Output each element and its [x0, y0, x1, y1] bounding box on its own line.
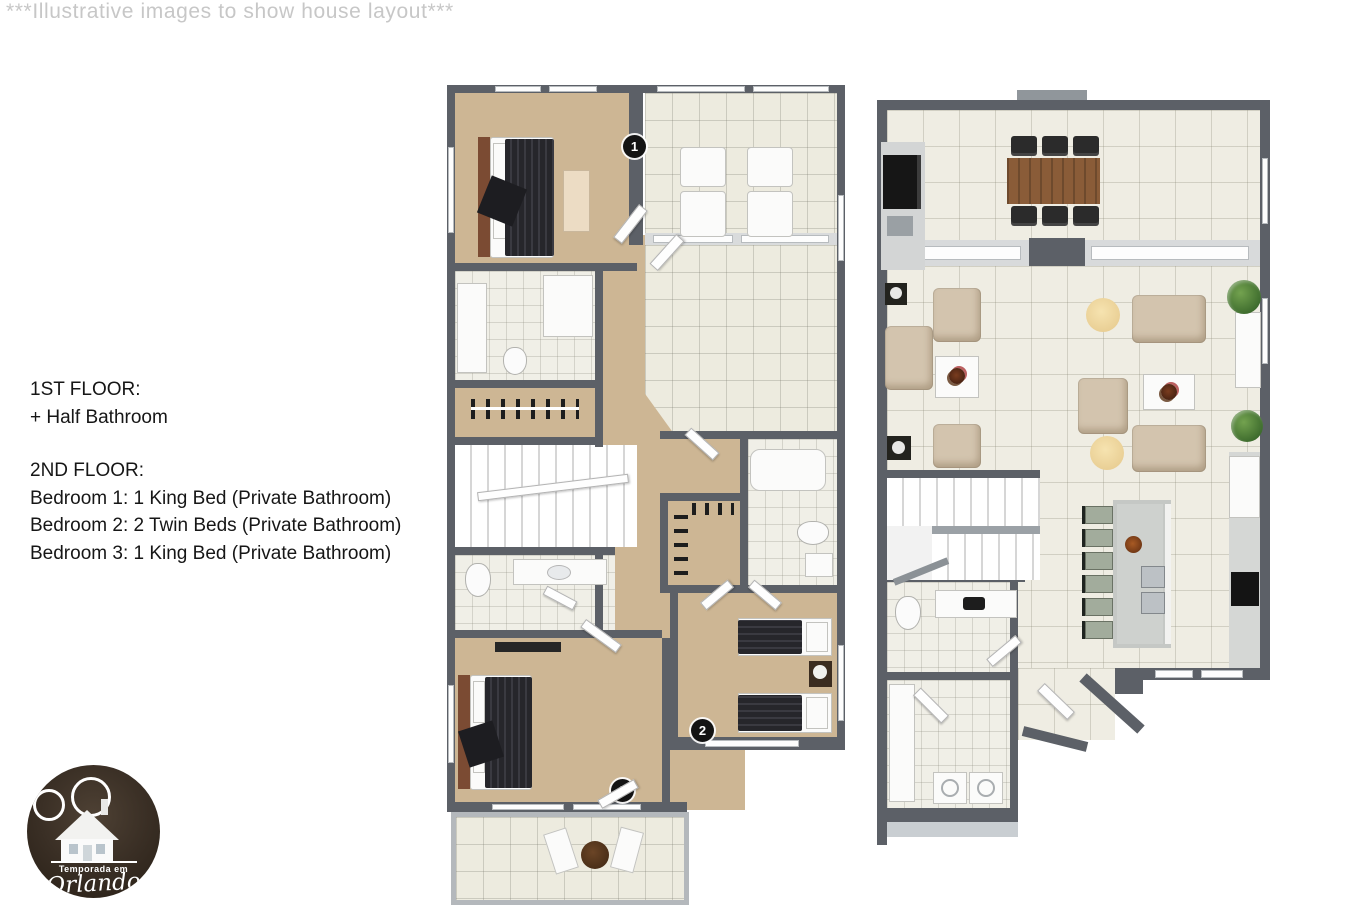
logo-rule: [51, 861, 137, 863]
bed3-pillow: [473, 681, 485, 723]
deck-lounger-back: [747, 147, 793, 187]
washer-door: [941, 779, 959, 797]
second-floor-plan: 1 3: [447, 85, 845, 910]
dining-chair: [1073, 206, 1099, 226]
wall: [887, 672, 1018, 680]
loveseat: [885, 326, 933, 390]
disclaimer-text: ***Illustrative images to show house lay…: [6, 0, 454, 24]
dining-chair: [1042, 206, 1068, 226]
bath2-sink: [547, 565, 571, 580]
twin-bed-1-duvet: [738, 620, 802, 654]
logo-house-roof: [55, 810, 119, 840]
floor2-item-bedroom2: Bedroom 2: 2 Twin Beds (Private Bathroom…: [30, 512, 401, 540]
logo-house-door: [83, 845, 92, 861]
nightstand-lamp: [813, 665, 827, 679]
wall: [447, 802, 687, 812]
fruit-bowl: [1125, 536, 1142, 553]
wall: [877, 100, 1270, 110]
wall: [662, 638, 670, 812]
twin-bed-2-pillow: [806, 697, 828, 729]
speaker-cone: [892, 441, 905, 454]
deck-lounger-seat: [747, 191, 793, 237]
window: [448, 685, 454, 763]
refrigerator: [883, 155, 921, 209]
bar-stool: [1085, 575, 1113, 593]
armchair: [933, 288, 981, 342]
floor2-item-bedroom3: Bedroom 3: 1 King Bed (Private Bathroom): [30, 540, 401, 568]
stairs-lower-flight1: [887, 478, 1040, 526]
marker-bedroom-2: 2: [691, 719, 714, 742]
wall: [740, 439, 748, 593]
plant: [1231, 410, 1263, 442]
half-bath-toilet: [895, 596, 921, 630]
flower-centerpiece: [1161, 384, 1177, 400]
speaker-cone: [890, 287, 902, 299]
sun-deck-floor: [645, 93, 837, 233]
window: [838, 195, 844, 261]
pouf: [1090, 436, 1124, 470]
porch-step: [881, 822, 1018, 837]
floor1-item: + Half Bathroom: [30, 404, 401, 432]
first-floor-plan: [877, 100, 1270, 860]
window: [448, 147, 454, 233]
sliding-door: [1091, 246, 1249, 260]
plant: [1227, 280, 1261, 314]
bed3-tv-console: [495, 642, 561, 652]
bath3-toilet: [797, 521, 829, 545]
bed1-bench: [563, 170, 590, 232]
wall: [1029, 238, 1085, 266]
closet1-rail: [471, 407, 579, 410]
wall: [1010, 582, 1018, 822]
kitchen-island-panel: [1165, 504, 1171, 644]
wall: [887, 470, 1040, 478]
bar-stool: [1085, 529, 1113, 547]
dining-table: [1007, 158, 1100, 204]
window: [705, 740, 799, 747]
wall: [660, 493, 742, 501]
logo-house-chimney: [101, 799, 108, 815]
logo-house-window: [69, 844, 78, 854]
twin-bed-2-duvet: [738, 695, 802, 731]
island-sink: [1141, 592, 1165, 614]
kitchen-cabinet: [1229, 456, 1260, 518]
wall: [447, 437, 595, 445]
temporada-em-orlando-logo: Temporada em Orlando: [27, 765, 160, 898]
wall: [670, 593, 678, 750]
floor-info-block: 1ST FLOOR: + Half Bathroom 2ND FLOOR: Be…: [30, 376, 401, 567]
window: [1201, 670, 1243, 678]
wall: [595, 271, 603, 447]
dining-chair: [1073, 136, 1099, 156]
bar-stool: [1085, 598, 1113, 616]
stair-divider: [932, 526, 1040, 534]
loveseat: [1132, 295, 1206, 343]
logo-house-window: [96, 844, 105, 854]
floor1-title: 1ST FLOOR:: [30, 376, 401, 404]
dryer-door: [977, 779, 995, 797]
dining-chair: [1011, 206, 1037, 226]
window: [1262, 158, 1268, 224]
window: [1155, 670, 1193, 678]
wall: [447, 263, 637, 271]
half-bath-sink-faucet: [963, 597, 985, 610]
window: [492, 804, 564, 810]
bath3-tub: [750, 449, 826, 491]
wall: [447, 630, 662, 638]
wall: [447, 547, 615, 555]
armchair: [933, 424, 981, 468]
window: [549, 86, 597, 92]
floor2-item-bedroom1: Bedroom 1: 1 King Bed (Private Bathroom): [30, 485, 401, 513]
bath3-sink: [805, 553, 833, 577]
wall: [1115, 668, 1143, 694]
sofa: [1078, 378, 1128, 434]
pouf: [1086, 298, 1120, 332]
twin-bed-1-pillow: [806, 622, 828, 652]
console-table: [1235, 312, 1261, 388]
bath1-vanity: [457, 283, 487, 373]
cooktop: [1231, 572, 1259, 606]
closet2-clothes: [692, 503, 734, 515]
wall: [877, 808, 1018, 822]
window: [838, 645, 844, 721]
floorplan-sheet: ***Illustrative images to show house lay…: [0, 0, 1366, 911]
bath1-shower: [543, 275, 593, 337]
bath2-toilet: [465, 563, 491, 597]
dining-chair: [1011, 136, 1037, 156]
window: [753, 86, 829, 92]
bar-stool: [1085, 552, 1113, 570]
landing-floor: [645, 245, 837, 431]
window: [657, 86, 745, 92]
small-appliance: [887, 216, 913, 236]
stairs-lower-flight2: [932, 534, 1040, 580]
spacer: [30, 431, 401, 457]
wall: [660, 493, 668, 593]
wall: [447, 380, 595, 388]
loveseat: [1132, 425, 1206, 472]
bar-stool: [1085, 621, 1113, 639]
dining-chair: [1042, 136, 1068, 156]
marker-bedroom-1: 1: [623, 135, 646, 158]
laundry-counter: [889, 684, 915, 802]
deck-lounger-back: [680, 147, 726, 187]
island-sink: [1141, 566, 1165, 588]
window: [1262, 298, 1268, 364]
flower-centerpiece: [949, 368, 965, 384]
window: [495, 86, 541, 92]
closet2-clothes: [674, 505, 688, 575]
floor2-title: 2ND FLOOR:: [30, 457, 401, 485]
bar-stool: [1085, 506, 1113, 524]
deck-lounger-seat: [680, 191, 726, 237]
balcony-table: [581, 841, 609, 869]
bath1-toilet: [503, 347, 527, 375]
